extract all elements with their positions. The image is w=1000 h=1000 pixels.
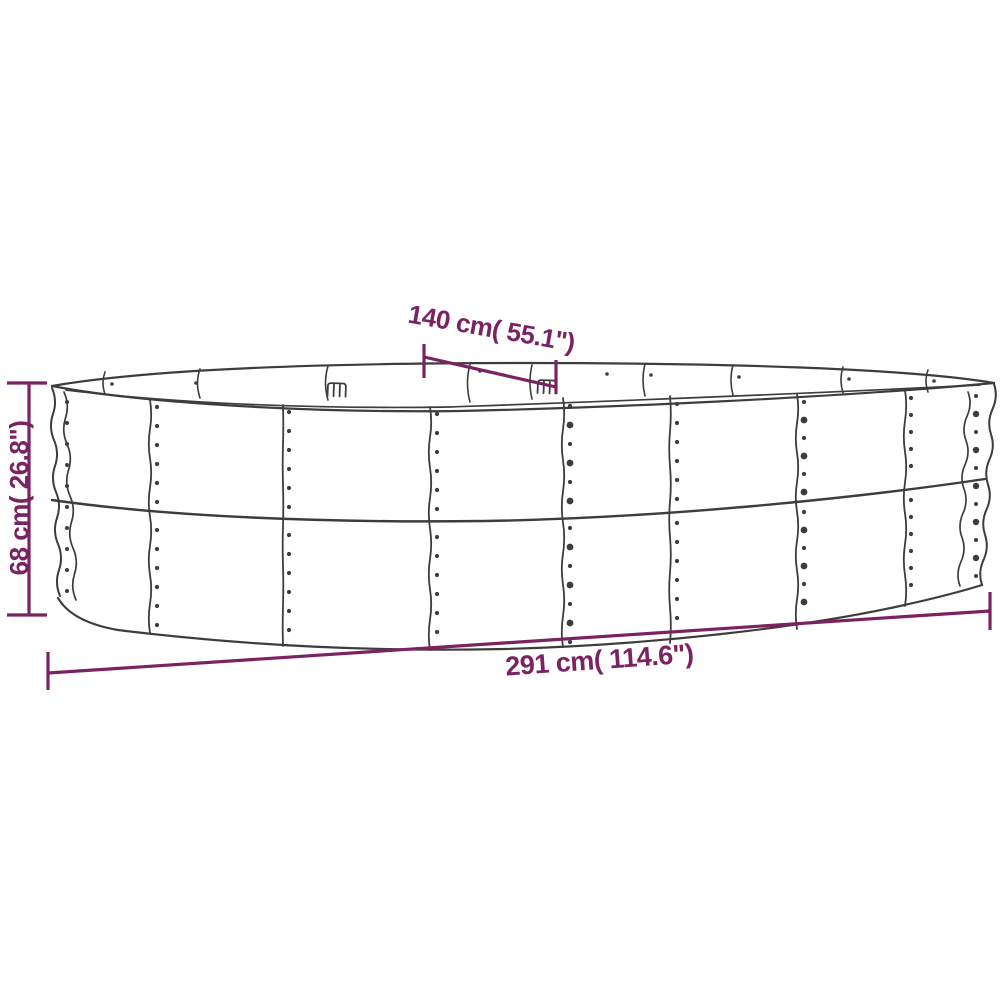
- diagram-canvas: 140 cm( 55.1") 68 cm( 26.8") 291 cm( 114…: [0, 0, 1000, 1000]
- rivet-dot: [675, 402, 679, 406]
- rivet-dot: [568, 404, 572, 408]
- rivet-dot: [435, 535, 439, 539]
- rim-clip-icon: [328, 383, 346, 397]
- rivet-dot: [65, 568, 69, 572]
- panel-seam: [149, 400, 151, 633]
- rivet-dot: [568, 564, 572, 568]
- rivet-dot: [65, 400, 69, 404]
- rivet-dot: [802, 400, 806, 404]
- rivet-dot: [287, 505, 291, 509]
- rivet-dot: [973, 411, 979, 417]
- rivet-dot: [65, 421, 69, 425]
- panel-seam: [429, 407, 431, 650]
- rivet-dot: [909, 549, 913, 553]
- rivet-dot: [675, 540, 679, 544]
- rivet-dot: [675, 478, 679, 482]
- rivet-dot: [801, 563, 808, 570]
- rivet-dot: [974, 538, 978, 542]
- rivet-dot: [909, 515, 913, 519]
- rivet-dot: [155, 500, 159, 504]
- rivet-dot: [567, 620, 574, 627]
- rivet-dot: [675, 616, 679, 620]
- rivet-dot: [675, 521, 679, 525]
- rivet-dot: [675, 559, 679, 563]
- rivet-dot: [801, 489, 808, 496]
- rim-outer-top-edge: [52, 363, 994, 386]
- rivet-dot: [802, 546, 806, 550]
- rivet-dot: [287, 571, 291, 575]
- rivet-dot: [675, 459, 679, 463]
- rivet-dot: [802, 510, 806, 514]
- rivet-dot: [802, 472, 806, 476]
- rivet-dot: [909, 532, 913, 536]
- rivet-dot: [155, 528, 159, 532]
- rim-outer-front-edge: [52, 383, 994, 411]
- rivet-dot: [567, 460, 574, 467]
- rivet-dot: [155, 547, 159, 551]
- rivet-dot: [155, 623, 159, 627]
- rivet-dot: [155, 443, 159, 447]
- rivet-dot: [567, 422, 574, 429]
- panel-seam: [283, 405, 284, 646]
- rivet-dot: [287, 609, 291, 613]
- rivet-dot: [675, 440, 679, 444]
- dimension-bottom-length: 291 cm( 114.6"): [48, 592, 990, 690]
- rivet-dot: [974, 394, 978, 398]
- rivet-dot: [909, 464, 913, 468]
- rivet-dot: [974, 574, 978, 578]
- rivet-dot: [435, 611, 439, 615]
- dimension-left-height: 68 cm( 26.8"): [4, 383, 47, 615]
- rivet-dot: [155, 566, 159, 570]
- rivet-dot: [675, 597, 679, 601]
- rivet-dot: [973, 555, 979, 561]
- rivet-dot: [155, 462, 159, 466]
- rivet-dot: [155, 481, 159, 485]
- rivet-dot: [435, 488, 439, 492]
- planter-drawing: [51, 363, 996, 650]
- rivet-dot: [435, 450, 439, 454]
- rivet-dot: [287, 552, 291, 556]
- rivet-dot: [973, 483, 979, 489]
- rivet-dot: [435, 469, 439, 473]
- rivet-dot: [567, 498, 574, 505]
- rivet-dot: [287, 533, 291, 537]
- rivet-dot: [909, 396, 913, 400]
- rivet-dot: [287, 410, 291, 414]
- product-dimension-diagram: 140 cm( 55.1") 68 cm( 26.8") 291 cm( 114…: [0, 0, 1000, 1000]
- rivet-dot: [801, 453, 808, 460]
- rivet-dot: [568, 442, 572, 446]
- rivet-dot: [287, 628, 291, 632]
- rivet-dot: [909, 566, 913, 570]
- rivet-dot: [567, 582, 574, 589]
- rivet-dot: [287, 448, 291, 452]
- rivet-dot: [568, 602, 572, 606]
- rivet-dot: [909, 430, 913, 434]
- rivet-dot: [287, 429, 291, 433]
- rivet-dot: [155, 585, 159, 589]
- rivet-dot: [801, 527, 808, 534]
- rivet-dot: [909, 498, 913, 502]
- rivet-dot: [287, 467, 291, 471]
- rivet-dot: [65, 589, 69, 593]
- rivet-dot: [909, 447, 913, 451]
- rivet-dot: [675, 421, 679, 425]
- rivet-dot: [435, 412, 439, 416]
- rivet-dot: [65, 463, 69, 467]
- rivet-dot: [568, 526, 572, 530]
- rivet-dot: [973, 519, 979, 525]
- middle-rib: [52, 479, 985, 521]
- rivet-dot: [909, 583, 913, 587]
- rivet-dot: [435, 507, 439, 511]
- rivet-dot: [435, 431, 439, 435]
- panel-seam: [904, 390, 906, 606]
- rivet-dot: [568, 640, 572, 644]
- rivet-dot: [802, 582, 806, 586]
- dimension-line: [424, 357, 556, 387]
- dimension-label-bottom-length: 291 cm( 114.6"): [504, 638, 694, 681]
- rivet-dot: [435, 592, 439, 596]
- rivet-dot: [65, 505, 69, 509]
- rivet-dot: [801, 599, 808, 606]
- left-edge-corrugation: [51, 388, 61, 596]
- panel-seam: [669, 396, 671, 643]
- panel-seam: [796, 394, 798, 629]
- panel-seam: [562, 398, 564, 647]
- dimension-annotations: 140 cm( 55.1") 68 cm( 26.8") 291 cm( 114…: [4, 299, 990, 690]
- rivet-dot: [675, 578, 679, 582]
- rivet-dot: [65, 442, 69, 446]
- rivet-dot: [65, 547, 69, 551]
- rivet-dot: [65, 526, 69, 530]
- rivet-dot: [435, 573, 439, 577]
- right-edge-corrugation: [958, 392, 970, 586]
- rivet-dot: [287, 486, 291, 490]
- rivet-dot: [568, 480, 572, 484]
- rivet-dot: [287, 590, 291, 594]
- rivet-dot: [974, 502, 978, 506]
- rivet-dot: [155, 604, 159, 608]
- rivet-dot: [802, 436, 806, 440]
- rivet-dot: [974, 430, 978, 434]
- rivet-dot: [435, 554, 439, 558]
- rivet-dot: [435, 630, 439, 634]
- rivet-dot: [155, 405, 159, 409]
- rivet-dot: [675, 497, 679, 501]
- rivet-dot: [567, 544, 574, 551]
- rivet-dot: [909, 413, 913, 417]
- dimension-label-top-width: 140 cm( 55.1"): [406, 299, 577, 358]
- rivet-dot: [801, 417, 808, 424]
- dimension-label-left-height: 68 cm( 26.8"): [4, 421, 34, 576]
- rivet-dot: [974, 466, 978, 470]
- rivet-dot: [155, 424, 159, 428]
- rivet-dot: [973, 447, 979, 453]
- bottom-edge: [58, 585, 982, 650]
- rivet-dot: [65, 484, 69, 488]
- right-edge-corrugation: [980, 384, 996, 585]
